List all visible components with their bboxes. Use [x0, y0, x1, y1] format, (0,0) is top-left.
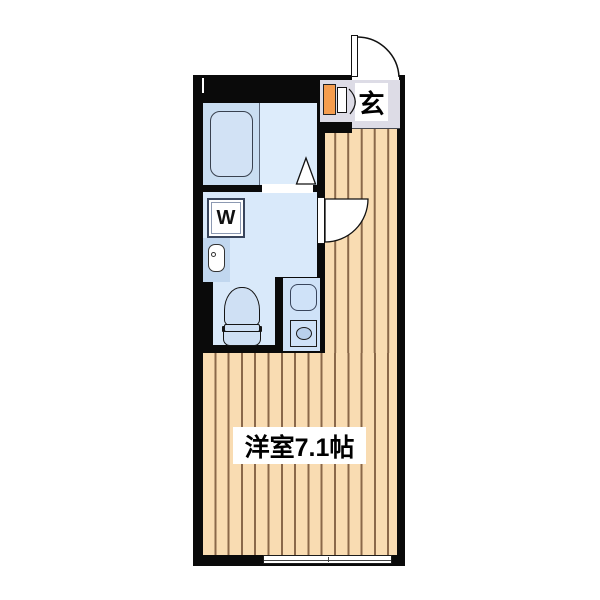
entrance-step-wall: [318, 122, 352, 133]
sliding-window-icon: [263, 555, 392, 564]
entrance-label: 玄: [358, 84, 384, 121]
main-room-floor-upper: [325, 129, 397, 353]
washing-machine-label: W: [217, 207, 236, 230]
washbasin-icon: [208, 244, 225, 272]
main-room-label-box: 洋室7.1帖: [233, 427, 366, 464]
main-room-label: 洋室7.1帖: [245, 428, 355, 464]
bathtub-icon: [210, 111, 253, 177]
entrance-door-leaf: [351, 35, 358, 77]
floor-plan: W 玄 洋室7.1帖: [0, 0, 600, 600]
entrance-closet-door-leaf: [337, 87, 347, 113]
bathroom-door-opening: [262, 184, 313, 193]
stove-burner-icon: [296, 327, 312, 340]
entrance-label-box: 玄: [355, 83, 388, 121]
wall-notch: [202, 78, 204, 93]
shoe-cabinet-icon: [323, 84, 336, 115]
toilet-icon: [224, 287, 260, 328]
room-door-leaf: [317, 197, 325, 244]
bathroom-floor: [260, 103, 317, 185]
washing-machine-icon: W: [207, 198, 245, 238]
faucet-icon: [211, 252, 216, 257]
kitchen-sink-icon: [290, 284, 317, 311]
toilet-tank: [223, 331, 261, 346]
